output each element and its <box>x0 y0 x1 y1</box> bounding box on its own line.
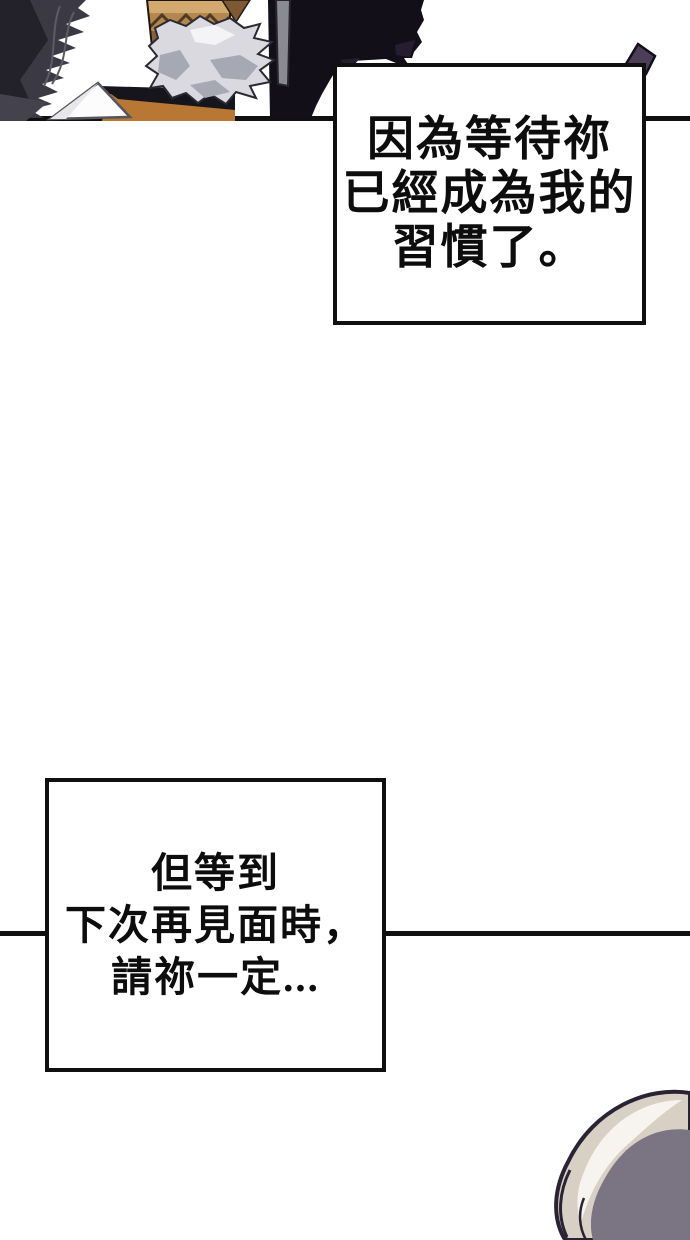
character-head-bottom-right <box>530 1080 690 1240</box>
speech-bubble-top-text: 因為等待祢 已經成為我的 習慣了。 <box>343 113 637 275</box>
speech-bubble-bottom-text: 但等到 下次再見面時， 請祢一定... <box>65 847 366 1003</box>
comic-page: 因為等待祢 已經成為我的 習慣了。 但等到 下次再見面時， 請祢一定... <box>0 0 690 1240</box>
hat-top-band <box>147 0 231 13</box>
speech-bubble-top: 因為等待祢 已經成為我的 習慣了。 <box>333 63 646 325</box>
speech-bubble-bottom: 但等到 下次再見面時， 請祢一定... <box>45 778 386 1072</box>
gray-strip-shape <box>276 0 290 86</box>
